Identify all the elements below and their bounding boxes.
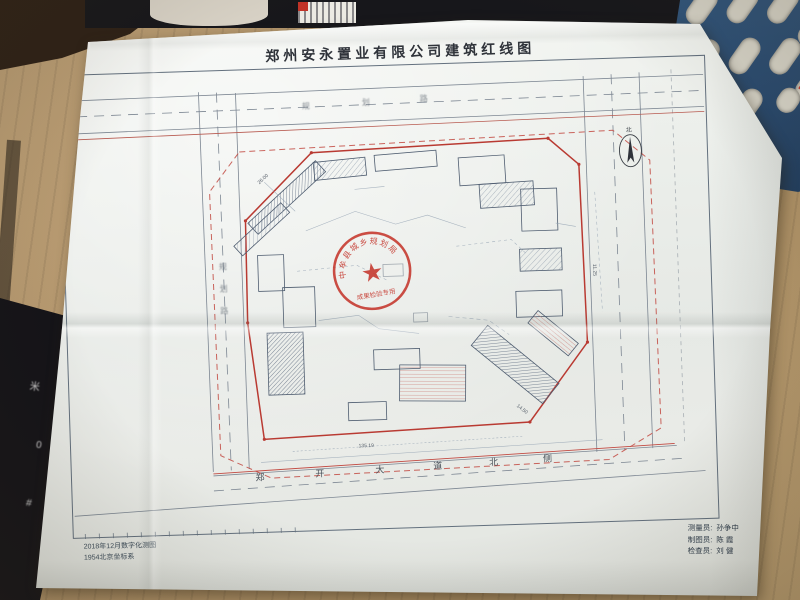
dimension-labels: 14.50 135.19 26.00 11.25 (256, 162, 602, 452)
paper-shading (0, 560, 800, 600)
road-char: 道 (433, 460, 442, 471)
paper-fold-vertical (138, 30, 162, 590)
outer-red-dashed-boundary (208, 129, 662, 480)
left-road (198, 91, 249, 472)
dim-label: 14.50 (515, 403, 529, 416)
road-char: 北 (489, 457, 498, 467)
paper-fold-horizontal (0, 312, 800, 338)
road-char: 规 (302, 101, 310, 111)
road-char: 开 (315, 468, 324, 478)
credit-label: 检查员: (688, 546, 713, 555)
dim-label: 26.00 (257, 173, 270, 186)
road-char: 划 (219, 283, 227, 293)
north-arrow-icon: 北 (619, 125, 642, 167)
stamp-star-icon: ★ (359, 257, 386, 288)
left-road-name: 规 划 路 (219, 261, 229, 315)
north-label: 北 (626, 126, 632, 134)
top-road-name: 规 划 路 (302, 93, 428, 111)
dim-label: 135.19 (359, 443, 375, 449)
building-blocks (231, 146, 581, 424)
road-char: 大 (375, 464, 384, 475)
red-road-edge-bottom (213, 443, 675, 474)
paper-sheet-wrap: 郑州安永置业有限公司建筑红线图 (0, 0, 800, 600)
right-road (583, 69, 685, 452)
paper-shading (710, 0, 800, 600)
road-char: 郑 (255, 471, 264, 482)
road-char: 划 (362, 97, 370, 107)
dim-label: 11.25 (591, 264, 597, 277)
blueprint-paper-sheet: 郑州安永置业有限公司建筑红线图 (0, 0, 800, 600)
credit-label: 测量员: (688, 523, 713, 532)
road-char: 侧 (543, 452, 552, 463)
stamp-banner-text: 成果检验专用 (356, 286, 396, 302)
bottom-road (73, 445, 706, 517)
credit-label: 制图员: (688, 535, 713, 544)
road-char: 规 (219, 261, 227, 271)
road-char: 路 (420, 93, 428, 103)
photo-scene: 米 0 # 郑州安永置业有限公司建筑红线图 (0, 0, 800, 600)
